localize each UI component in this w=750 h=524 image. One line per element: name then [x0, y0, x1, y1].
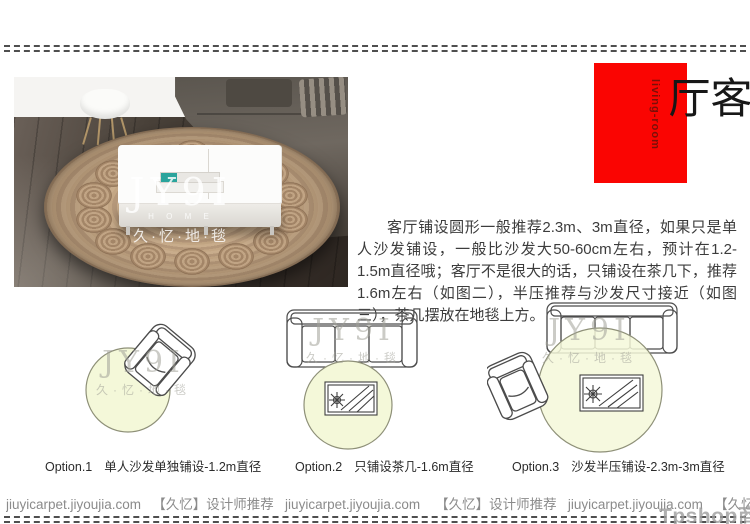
option-text: 单人沙发单独铺设-1.2m直径: [104, 460, 261, 474]
option-label: Option.3: [512, 460, 559, 474]
banner-subtitle: living-room: [649, 79, 661, 150]
rug-rosette: [76, 206, 112, 233]
plant-icon: [329, 392, 345, 408]
magazine: [160, 172, 220, 183]
banner-title: 客厅: [665, 76, 749, 183]
option-text: 只铺设茶几-1.6m直径: [354, 460, 473, 474]
option-text: 沙发半压铺设-2.3m-3m直径: [571, 460, 724, 474]
bottom-divider: [4, 516, 746, 523]
coffee-table: [118, 145, 282, 235]
plant-icon: [584, 385, 602, 403]
armchair-topview: [487, 349, 551, 422]
coffee-table-topview: [580, 375, 643, 411]
rug-rosette: [130, 243, 166, 270]
eames-chair: [80, 89, 130, 119]
striped-pillow: [299, 77, 348, 118]
table-front: [119, 203, 281, 227]
table-leg: [270, 226, 274, 235]
caption-option-2: Option.2只铺设茶几-1.6m直径: [295, 456, 474, 475]
footer-repeat-text: jiuyicarpet.jiyoujia.com 【久忆】设计师推荐 jiuyi…: [6, 497, 750, 513]
option-label: Option.1: [45, 460, 92, 474]
caption-option-1: Option.1单人沙发单独铺设-1.2m直径: [45, 456, 261, 475]
page: JY9I H O M E 久·忆·地·毯 living-room 客厅 客厅铺设…: [0, 0, 750, 524]
sofa-pillow: [226, 79, 292, 107]
diagram-option-2: [283, 304, 425, 452]
table-leg: [126, 226, 130, 235]
sofa-topview: [287, 310, 417, 367]
coffee-table-topview: [325, 382, 377, 415]
table-leg: [204, 226, 208, 235]
diagram-option-1: [80, 313, 202, 435]
option-label: Option.2: [295, 460, 342, 474]
top-divider: [4, 45, 746, 52]
living-room-banner: living-room 客厅: [594, 63, 687, 183]
rug-rosette: [174, 248, 210, 275]
tpshop-watermark: Tpshop商城: [659, 500, 750, 524]
rug-rosette: [218, 243, 254, 270]
living-room-photo: JY9I H O M E 久·忆·地·毯: [14, 77, 348, 287]
diagram-option-3: [487, 300, 722, 460]
